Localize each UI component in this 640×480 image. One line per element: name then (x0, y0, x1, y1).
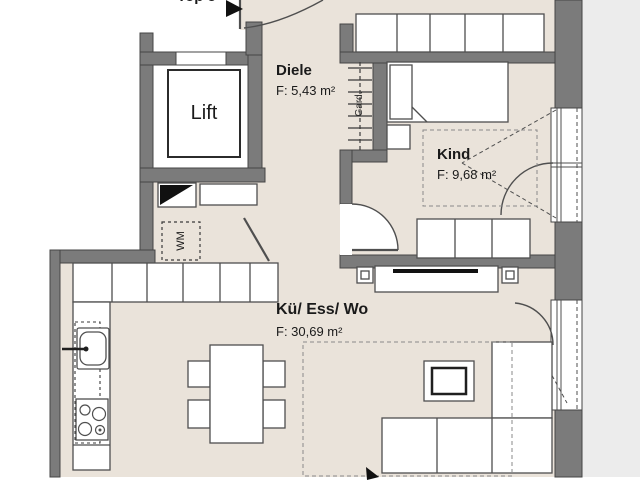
wall-kitchen-top (50, 250, 155, 263)
coffee-table-top (432, 368, 466, 394)
plan-linework (0, 0, 640, 480)
wall-right-bottom (555, 410, 582, 477)
lift-label: Lift (168, 70, 240, 157)
room-name-kind: Kind (437, 146, 470, 163)
wall-door-stub (340, 150, 352, 204)
washing-machine-label: WM (175, 211, 187, 271)
lift-door-opening (176, 52, 226, 65)
faucet-head (84, 347, 89, 352)
kind-wardrobe-row (356, 14, 544, 52)
dining-chair (263, 361, 285, 387)
dimension-arrow-icon (366, 467, 379, 480)
sofa-chaise (492, 342, 552, 418)
wall-kind-top (340, 52, 582, 63)
wall-stair-bottom (140, 168, 265, 182)
wall-stair-top-left (140, 52, 176, 65)
wall-upper-stub (340, 24, 353, 52)
room-area-kind: F: 9,68 m² (437, 167, 496, 182)
dining-table (210, 345, 263, 443)
room-area-diele: F: 5,43 m² (276, 83, 335, 98)
bed-pillow (390, 65, 412, 119)
wall-kind-left (373, 63, 387, 150)
speaker-plant-right-inner (506, 271, 514, 279)
kind-doorway-floor (340, 204, 352, 255)
kind-dresser (417, 219, 530, 258)
kind-door-swing-area (352, 204, 398, 250)
wall-exterior-left (50, 250, 60, 477)
wardrobe-label: Gard. (354, 74, 366, 134)
living-window-swing-arc (515, 303, 553, 345)
speaker-plant-left-inner (361, 271, 369, 279)
nightstand (387, 125, 410, 149)
wall-right-top (555, 0, 582, 108)
wm-door-leaf (244, 218, 269, 261)
entry-cabinet (200, 184, 257, 205)
room-area-living: F: 30,69 m² (276, 324, 342, 339)
floorplan: Top 5 Lift Diele F: 5,43 m² Kind F: 9,68… (0, 0, 640, 480)
sofa-base (382, 418, 552, 473)
dining-chair (188, 361, 210, 387)
dining-chair (263, 400, 285, 428)
burner-knob-dot (99, 429, 102, 432)
unit-label: Top 5 (177, 0, 216, 5)
kind-window-swing-arc (501, 163, 553, 215)
dining-chair (188, 400, 210, 428)
room-name-diele: Diele (276, 62, 312, 79)
wall-stair-right (248, 52, 262, 172)
wall-right-mid (555, 222, 582, 303)
room-name-living: Kü/ Ess/ Wo (276, 301, 368, 319)
